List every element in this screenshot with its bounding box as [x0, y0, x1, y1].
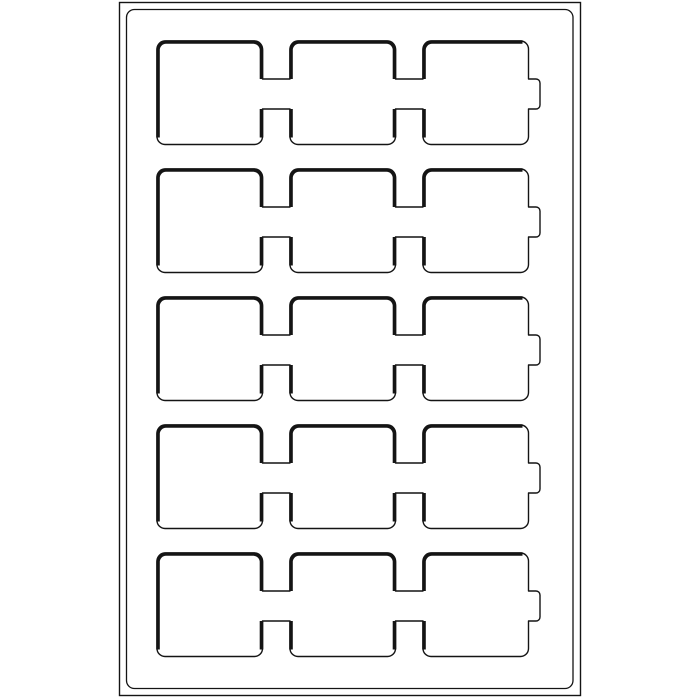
coin-tray-diagram	[0, 0, 700, 700]
diagram-container	[0, 0, 700, 700]
diagram-background	[0, 0, 700, 700]
